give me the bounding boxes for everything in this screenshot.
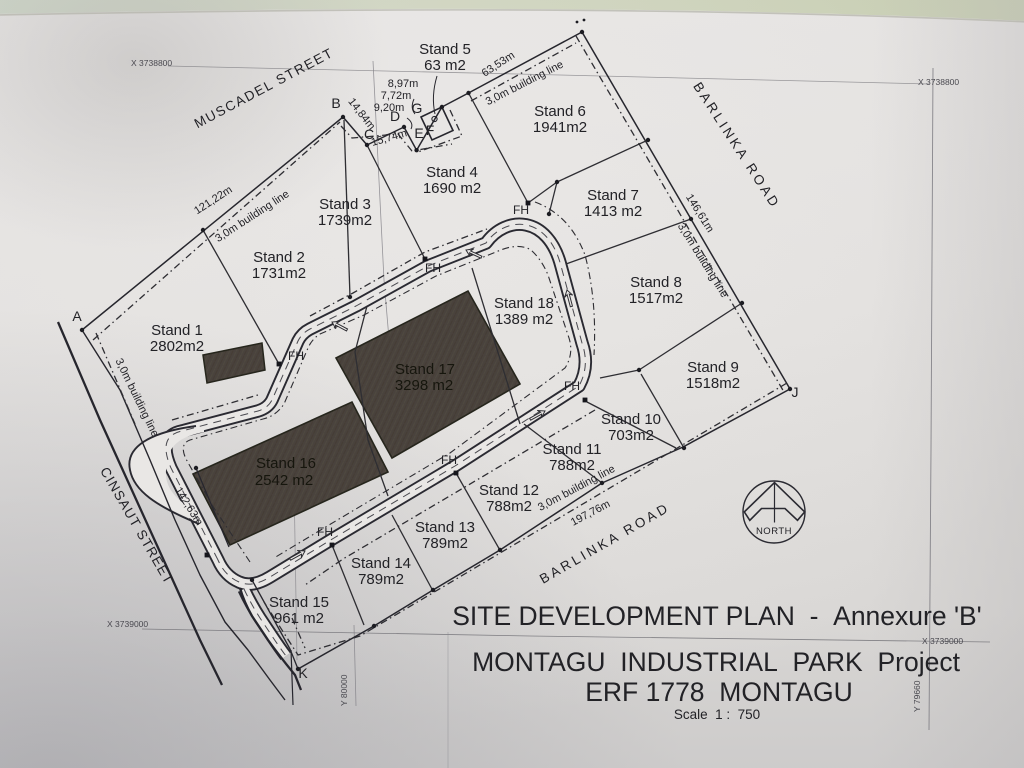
svg-text:NORTH: NORTH — [756, 526, 792, 537]
svg-text:1941m2: 1941m2 — [533, 119, 587, 136]
svg-text:Scale 1 : 750: Scale 1 : 750 — [674, 707, 760, 722]
svg-text:Stand 16: Stand 16 — [256, 455, 316, 472]
svg-text:X 3738800: X 3738800 — [131, 58, 172, 68]
svg-text:Stand 10: Stand 10 — [601, 411, 661, 428]
svg-text:G: G — [412, 100, 423, 116]
svg-text:X 3738800: X 3738800 — [918, 77, 959, 87]
svg-text:703m2: 703m2 — [608, 427, 654, 444]
svg-text:E: E — [414, 125, 423, 141]
svg-text:B: B — [331, 95, 340, 111]
svg-text:7,72m: 7,72m — [381, 90, 412, 102]
svg-text:3298 m2: 3298 m2 — [395, 377, 453, 394]
svg-text:1690 m2: 1690 m2 — [423, 180, 481, 197]
svg-text:9,20m: 9,20m — [374, 102, 405, 114]
svg-text:Stand 15: Stand 15 — [269, 594, 329, 611]
svg-text:63 m2: 63 m2 — [424, 57, 466, 74]
svg-text:2802m2: 2802m2 — [150, 338, 204, 355]
svg-text:1413 m2: 1413 m2 — [584, 203, 642, 220]
svg-text:1731m2: 1731m2 — [252, 265, 306, 282]
svg-text:ERF 1778 MONTAGU: ERF 1778 MONTAGU — [585, 677, 853, 707]
svg-text:789m2: 789m2 — [422, 535, 468, 552]
svg-text:Stand 5: Stand 5 — [419, 41, 471, 58]
svg-text:2542 m2: 2542 m2 — [255, 472, 313, 489]
svg-text:Stand 18: Stand 18 — [494, 295, 554, 312]
svg-text:A: A — [72, 308, 82, 324]
svg-text:789m2: 789m2 — [358, 571, 404, 588]
svg-text:Stand 13: Stand 13 — [415, 519, 475, 536]
svg-text:1518m2: 1518m2 — [686, 375, 740, 392]
svg-text:Stand 12: Stand 12 — [479, 482, 539, 499]
svg-text:Stand 3: Stand 3 — [319, 196, 371, 213]
svg-text:8,97m: 8,97m — [388, 78, 419, 90]
svg-text:FH: FH — [564, 379, 580, 393]
svg-text:Stand 7: Stand 7 — [587, 187, 639, 204]
svg-text:961 m2: 961 m2 — [274, 610, 324, 627]
svg-text:Stand 14: Stand 14 — [351, 555, 411, 572]
svg-text:X 3739000: X 3739000 — [922, 636, 963, 646]
svg-text:F: F — [426, 122, 435, 138]
svg-text:Stand 6: Stand 6 — [534, 103, 586, 120]
svg-text:Stand 1: Stand 1 — [151, 322, 203, 339]
svg-text:J: J — [792, 384, 799, 400]
svg-text:SITE DEVELOPMENT PLAN - Anne: SITE DEVELOPMENT PLAN - Annexure 'B' — [452, 601, 982, 631]
svg-text:FH: FH — [513, 203, 529, 217]
svg-text:K: K — [298, 665, 308, 681]
svg-text:Stand 11: Stand 11 — [543, 441, 602, 458]
svg-text:FH: FH — [441, 453, 457, 467]
svg-text:1389 m2: 1389 m2 — [495, 311, 553, 328]
svg-text:788m2: 788m2 — [549, 457, 595, 474]
svg-text:1739m2: 1739m2 — [318, 212, 372, 229]
svg-text:Stand 4: Stand 4 — [426, 164, 478, 181]
svg-text:Y 80000: Y 80000 — [339, 674, 349, 706]
svg-text:Y 79660: Y 79660 — [912, 680, 922, 712]
svg-text:Stand 17: Stand 17 — [395, 361, 455, 378]
svg-text:FH: FH — [288, 349, 304, 363]
svg-text:Stand 2: Stand 2 — [253, 249, 305, 266]
svg-text:1517m2: 1517m2 — [629, 290, 683, 307]
svg-text:MONTAGU INDUSTRIAL PARK Pro: MONTAGU INDUSTRIAL PARK Project — [472, 647, 961, 677]
svg-text:X 3739000: X 3739000 — [107, 619, 148, 629]
svg-text:FH: FH — [425, 261, 441, 275]
svg-text:FH: FH — [317, 525, 333, 539]
svg-text:788m2: 788m2 — [486, 498, 532, 515]
svg-text:Stand 8: Stand 8 — [630, 274, 682, 291]
svg-text:Stand 9: Stand 9 — [687, 359, 739, 376]
